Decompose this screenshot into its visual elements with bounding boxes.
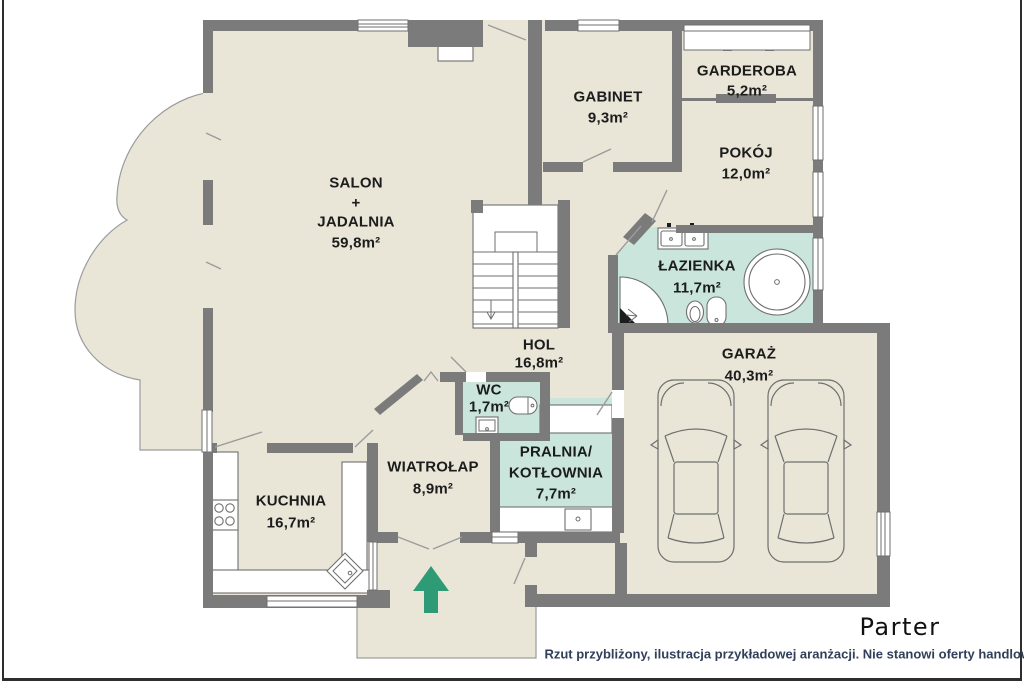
room-area-salon: 59,8m² [332,235,381,252]
toilet-icon [687,301,704,323]
room-label-garaz: GARAŻ [722,346,776,363]
room-area-garderoba: 5,2m² [727,83,767,100]
room-label-wc: WC [476,382,501,399]
wc-toilet-icon [509,397,537,414]
room-area-hol: 16,8m² [515,355,564,372]
room-area-kuchnia: 16,7m² [267,515,316,532]
wc-sink-icon [476,417,498,434]
room-label-salon: SALON [329,175,383,192]
room-label-jadalnia: JADALNIA [317,214,394,231]
room-area-gabinet: 9,3m² [588,110,628,127]
stove-icon [212,500,238,530]
floor-plan: SALON + JADALNIA 59,8m² GABINET 9,3m² GA… [0,0,1024,683]
room-area-wc: 1,7m² [469,399,509,416]
room-label-pralnia: PRALNIA/ [520,444,592,461]
floor-title: Parter [859,613,940,641]
floor-plan-drawing [0,0,1024,683]
room-label-garderoba: GARDEROBA [697,63,797,80]
room-label-gabinet: GABINET [574,89,643,106]
room-label-pokoj: POKÓJ [719,145,773,162]
bidet-icon [707,297,726,326]
room-area-pralnia: 7,7m² [536,486,576,503]
room-area-lazienka: 11,7m² [673,280,721,297]
room-area-garaz: 40,3m² [725,368,774,385]
room-label-kuchnia: KUCHNIA [256,493,327,510]
room-label-wiatrolap: WIATROŁAP [387,459,479,476]
terrace-shape [75,92,213,450]
room-area-pokoj: 12,0m² [722,166,771,183]
room-label-hol: HOL [523,337,555,354]
disclaimer-text: Rzut przybliżony, ilustracja przykładowe… [544,647,1024,662]
round-bathtub-icon [744,249,810,315]
room-label-salon-plus: + [352,195,361,212]
room-area-wiatrolap: 8,9m² [413,481,453,498]
room-label-lazienka: ŁAZIENKA [658,258,735,275]
room-label-kotlownia: KOTŁOWNIA [509,465,603,482]
staircase-icon [473,205,558,328]
